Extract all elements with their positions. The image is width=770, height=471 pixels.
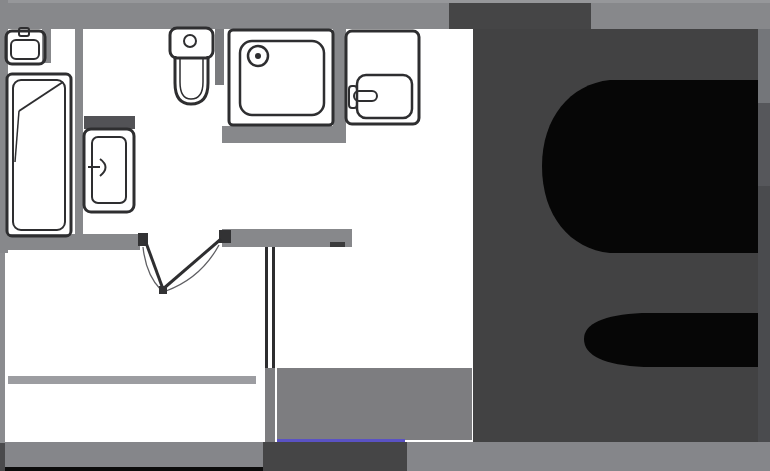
right-wall-lower xyxy=(758,186,770,442)
floor-plan xyxy=(0,0,770,471)
room-divider-line-b xyxy=(272,247,275,368)
door-swing-arc-left xyxy=(143,247,161,290)
open-door-leaf-white xyxy=(84,30,93,72)
room-divider-line-a xyxy=(265,247,268,368)
top-wall xyxy=(0,0,770,29)
floor-patch xyxy=(277,368,472,440)
bottom-wall-right xyxy=(407,442,770,471)
top-wall-edge xyxy=(0,0,770,3)
bottom-edge-black-strip xyxy=(5,467,265,471)
glyph-lower-counter xyxy=(584,313,758,367)
glyph-upper-counter xyxy=(542,80,758,253)
washer-inner xyxy=(92,137,126,203)
bottom-wall-left xyxy=(5,442,263,467)
bottom-dark-block xyxy=(263,442,407,471)
under-shower-wall xyxy=(222,126,346,143)
shower-inner xyxy=(240,41,324,115)
balcony-white-square xyxy=(5,420,16,438)
bath-kitchen-divider-wall xyxy=(75,29,83,236)
toilet-bowl-inner xyxy=(180,58,203,99)
toilet-button xyxy=(184,35,196,47)
toilet-wall-stub xyxy=(215,29,224,85)
washer-back-band xyxy=(84,116,135,129)
left-wall-lower xyxy=(0,253,5,443)
overlay-top-tab xyxy=(449,3,591,29)
divider-gray-column xyxy=(265,368,275,442)
floor-plan-canvas xyxy=(0,0,770,471)
right-wall-mid xyxy=(758,103,770,186)
right-wall-upper xyxy=(758,29,770,103)
balcony-divider-strip xyxy=(8,376,256,384)
bathtub-inner xyxy=(13,80,65,230)
door-meeting-dot xyxy=(159,286,167,294)
washer-door-detail xyxy=(88,159,106,176)
hall-wall-end-cap xyxy=(330,242,345,247)
shower-drain-dot xyxy=(255,53,261,59)
basin-bowl xyxy=(11,40,39,59)
toilet-tank xyxy=(170,28,213,58)
bathtub-slope-line-2 xyxy=(15,111,19,162)
door-leaf-right xyxy=(163,239,221,289)
shower-side-wall xyxy=(333,29,346,143)
door-swing-arc-right xyxy=(166,245,219,291)
blue-accent-line xyxy=(277,439,405,442)
bathtub-slope-line xyxy=(19,82,63,111)
kitchen-sink-basin xyxy=(357,75,412,118)
left-wall-corner-dark xyxy=(0,443,5,471)
